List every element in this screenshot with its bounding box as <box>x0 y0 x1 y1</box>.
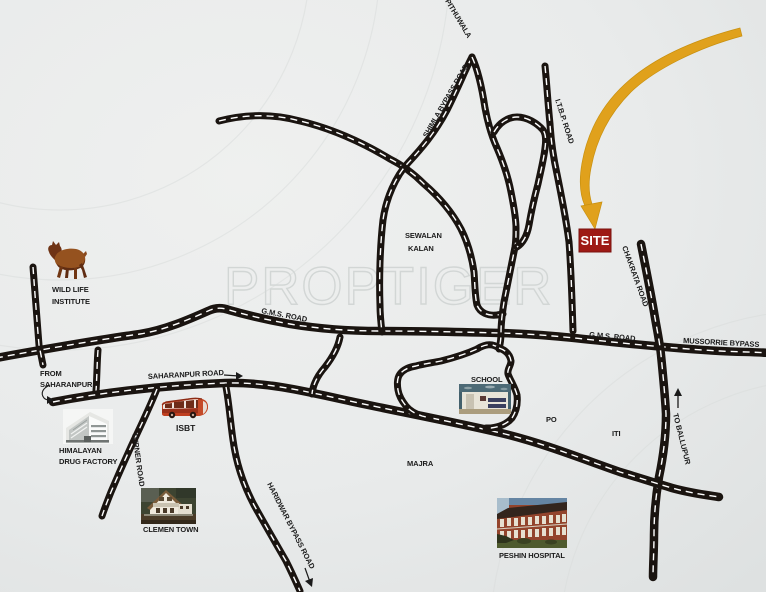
svg-text:PESHIN HOSPITAL: PESHIN HOSPITAL <box>499 551 565 560</box>
svg-text:MAJRA: MAJRA <box>407 459 434 468</box>
svg-text:SEWALAN: SEWALAN <box>405 231 442 240</box>
svg-text:PO: PO <box>546 415 557 424</box>
svg-text:CLEMEN TOWN: CLEMEN TOWN <box>143 525 198 534</box>
svg-text:SAHARANPUR: SAHARANPUR <box>40 380 93 389</box>
svg-text:KALAN: KALAN <box>408 244 434 253</box>
svg-text:ITI: ITI <box>612 429 620 438</box>
svg-text:HIMALAYAN: HIMALAYAN <box>59 446 102 455</box>
svg-text:DRUG FACTORY: DRUG FACTORY <box>59 457 117 466</box>
svg-text:SCHOOL: SCHOOL <box>471 375 503 384</box>
svg-text:INSTITUTE: INSTITUTE <box>52 297 90 306</box>
svg-text:ISBT: ISBT <box>176 423 196 433</box>
svg-text:FROM: FROM <box>40 369 62 378</box>
svg-text:SITE: SITE <box>581 233 610 248</box>
svg-text:WILD LIFE: WILD LIFE <box>52 285 89 294</box>
